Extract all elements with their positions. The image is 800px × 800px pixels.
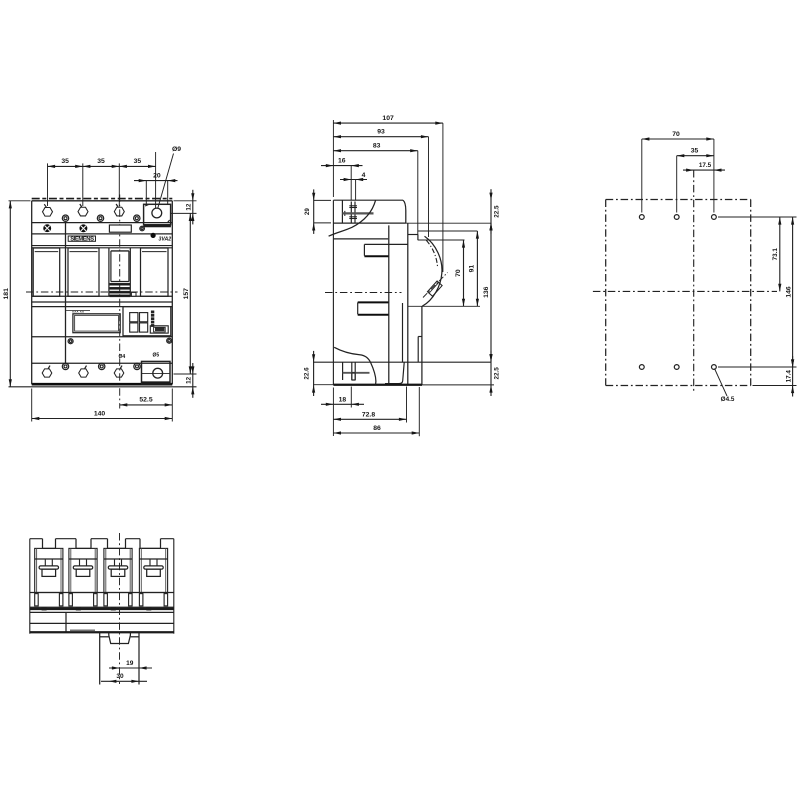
svg-text:181: 181	[3, 288, 10, 300]
svg-text:12: 12	[186, 203, 193, 211]
svg-text:70: 70	[455, 269, 462, 277]
svg-text:22.5: 22.5	[494, 205, 501, 218]
svg-text:Ø4: Ø4	[118, 354, 125, 360]
svg-text:52.5: 52.5	[139, 397, 152, 404]
svg-text:18: 18	[339, 396, 347, 403]
svg-text:17.5: 17.5	[699, 162, 712, 169]
svg-text:19: 19	[126, 660, 134, 667]
svg-text:Ø9: Ø9	[172, 146, 181, 153]
svg-text:3VA2: 3VA2	[159, 237, 172, 243]
svg-text:86: 86	[373, 425, 381, 432]
svg-text:91: 91	[468, 265, 475, 273]
svg-text:93: 93	[377, 129, 385, 136]
svg-text:30: 30	[116, 673, 124, 680]
svg-text:73.1: 73.1	[772, 248, 779, 261]
svg-text:70: 70	[672, 131, 680, 138]
svg-text:35: 35	[97, 158, 105, 165]
svg-text:22.5: 22.5	[494, 367, 501, 380]
svg-text:16: 16	[338, 158, 346, 165]
svg-text:35: 35	[134, 158, 142, 165]
svg-text:157: 157	[183, 288, 190, 300]
svg-text:SIEMENS: SIEMENS	[70, 237, 94, 243]
svg-text:12: 12	[186, 376, 193, 384]
svg-text:xxx xx: xxx xx	[72, 308, 85, 313]
svg-text:22.6: 22.6	[304, 367, 311, 380]
svg-text:83: 83	[373, 143, 381, 150]
svg-text:35: 35	[691, 148, 699, 155]
svg-text:Ø4.5: Ø4.5	[721, 396, 735, 403]
svg-text:146: 146	[785, 286, 792, 298]
svg-text:4: 4	[362, 172, 366, 179]
svg-text:107: 107	[382, 115, 394, 122]
svg-text:136: 136	[483, 286, 490, 298]
svg-text:Ø5: Ø5	[152, 353, 159, 359]
svg-text:35: 35	[61, 158, 69, 165]
svg-text:72.8: 72.8	[362, 411, 375, 418]
svg-text:140: 140	[94, 410, 106, 417]
svg-text:17.4: 17.4	[785, 370, 792, 383]
svg-text:20: 20	[153, 172, 161, 179]
svg-text:29: 29	[304, 208, 311, 216]
